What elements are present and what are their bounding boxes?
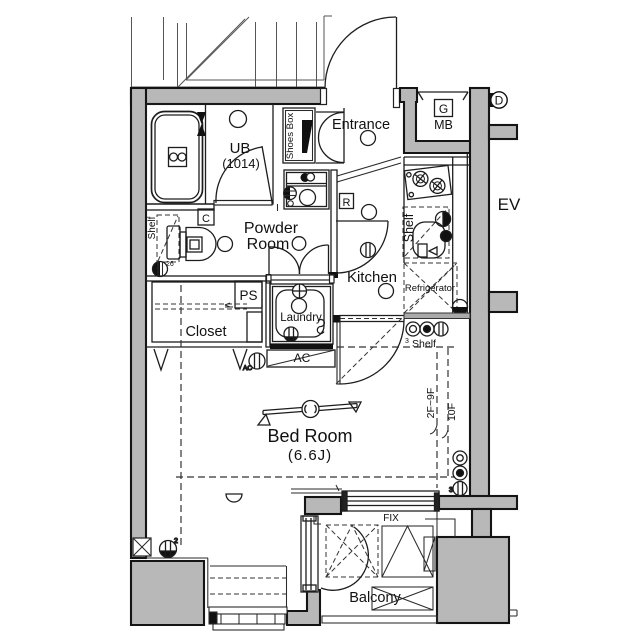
svg-text:Room: Room (247, 236, 290, 253)
svg-text:Balcony: Balcony (349, 590, 401, 606)
svg-text:Shelf: Shelf (402, 213, 416, 242)
svg-text:D: D (495, 94, 504, 108)
svg-text:AC: AC (294, 351, 311, 365)
svg-text:3: 3 (405, 338, 409, 345)
svg-text:Powder: Powder (244, 220, 299, 237)
svg-text:Shoes Box: Shoes Box (285, 113, 296, 160)
svg-text:Shelf: Shelf (412, 338, 436, 350)
svg-text:(1014): (1014) (222, 156, 260, 171)
svg-text:Shelf: Shelf (147, 216, 158, 239)
svg-text:2: 2 (174, 538, 178, 545)
svg-text:Closet: Closet (185, 324, 226, 340)
svg-text:UB: UB (230, 140, 251, 157)
svg-text:R: R (343, 197, 351, 209)
svg-text:Refrigerator: Refrigerator (405, 283, 455, 294)
svg-text:AC: AC (243, 365, 252, 372)
svg-text:Kitchen: Kitchen (347, 269, 397, 286)
svg-text:2F~9F: 2F~9F (425, 388, 437, 419)
svg-text:C: C (202, 213, 210, 225)
svg-text:Laundry: Laundry (280, 312, 322, 324)
svg-text:Bed Room: Bed Room (267, 426, 352, 446)
svg-text:10F: 10F (446, 403, 458, 421)
svg-text:FIX: FIX (383, 513, 399, 524)
svg-text:EV: EV (498, 195, 521, 214)
svg-text:MB: MB (434, 118, 453, 132)
svg-text:(6.6J): (6.6J) (288, 447, 332, 464)
svg-text:3: 3 (449, 487, 453, 494)
svg-text:26: 26 (166, 261, 174, 268)
svg-text:Entrance: Entrance (332, 117, 390, 133)
svg-text:PS: PS (239, 288, 257, 303)
svg-text:G: G (439, 102, 448, 116)
